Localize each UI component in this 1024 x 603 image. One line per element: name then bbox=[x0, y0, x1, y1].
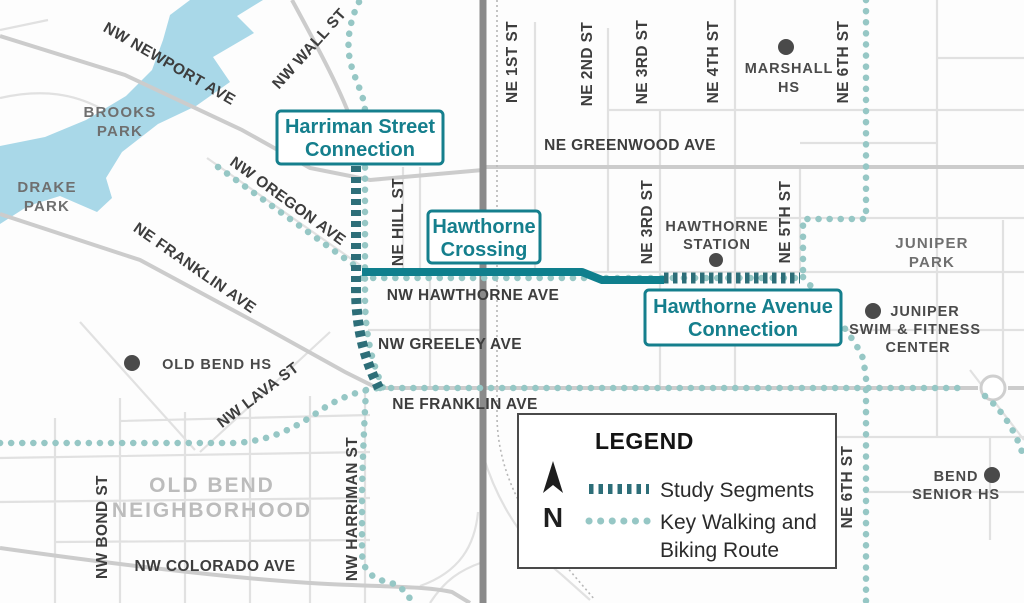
street-label-ne-1st-st: NE 1ST ST bbox=[504, 21, 521, 103]
bend-senior-hs-marker bbox=[984, 467, 1000, 483]
street-label-ne-2nd-st: NE 2ND ST bbox=[579, 22, 596, 107]
callout-hawthorne-ave-line1: Hawthorne Avenue bbox=[653, 296, 833, 318]
park-label-drake-1: DRAKE bbox=[17, 179, 76, 196]
street-label-nw-greeley-ave: NW GREELEY AVE bbox=[378, 336, 522, 353]
street-label-ne-hill-st: NE HILL ST bbox=[390, 178, 407, 266]
hawthorne-station-label-1: HAWTHORNE bbox=[665, 219, 768, 235]
neighborhood-label-1: OLD BEND bbox=[149, 474, 275, 497]
bend-senior-hs-label-2: SENIOR HS bbox=[912, 487, 1000, 503]
park-label-juniper-1: JUNIPER bbox=[895, 235, 968, 252]
street-label-nw-oregon-ave: NW OREGON AVE bbox=[227, 154, 349, 249]
juniper-swim-marker bbox=[865, 303, 881, 319]
old-bend-hs-label: OLD BEND HS bbox=[162, 357, 272, 373]
legend: LEGEND N Study Segments Key Walking and … bbox=[518, 414, 836, 568]
juniper-swim-label-2: SWIM & FITNESS bbox=[849, 322, 981, 338]
street-label-nw-bond-st: NW BOND ST bbox=[94, 475, 111, 579]
street-label-ne-3rd-st-mid: NE 3RD ST bbox=[639, 180, 656, 265]
callout-hawthorne-ave-line2: Connection bbox=[688, 319, 798, 341]
park-label-brooks-2: PARK bbox=[97, 123, 143, 140]
callout-crossing-line2: Crossing bbox=[441, 239, 528, 261]
street-label-nw-harriman-st: NW HARRIMAN ST bbox=[344, 437, 361, 581]
street-label-nw-hawthorne-ave: NW HAWTHORNE AVE bbox=[387, 287, 560, 304]
walking-route-harriman-south bbox=[362, 390, 412, 603]
street-label-ne-4th-st: NE 4TH ST bbox=[705, 20, 722, 103]
map-canvas: NW NEWPORT AVE NW WALL ST NW OREGON AVE … bbox=[0, 0, 1024, 603]
walking-route-oregon-ave bbox=[218, 167, 358, 268]
walking-route-wall-st bbox=[348, 2, 365, 110]
street-label-nw-colorado-ave: NW COLORADO AVE bbox=[135, 558, 296, 575]
juniper-swim-label-1: JUNIPER bbox=[890, 304, 959, 320]
legend-title: LEGEND bbox=[595, 428, 694, 454]
street-label-ne-franklin-ave-east: NE FRANKLIN AVE bbox=[392, 396, 538, 413]
street-label-nw-wall-st: NW WALL ST bbox=[269, 5, 350, 92]
bend-senior-hs-label-1: BEND bbox=[934, 469, 979, 485]
marshall-hs-label-1: MARSHALL bbox=[745, 61, 834, 77]
callout-harriman-street-connection: Harriman Street Connection bbox=[277, 111, 443, 164]
park-label-juniper-2: PARK bbox=[909, 254, 955, 271]
callout-hawthorne-avenue-connection: Hawthorne Avenue Connection bbox=[645, 290, 841, 345]
street-label-ne-6th-st-north: NE 6TH ST bbox=[835, 20, 852, 103]
neighborhood-label-2: NEIGHBORHOOD bbox=[112, 499, 312, 522]
street-label-ne-5th-st: NE 5TH ST bbox=[777, 180, 794, 263]
north-label: N bbox=[543, 502, 563, 533]
juniper-swim-label-3: CENTER bbox=[885, 340, 950, 356]
callout-hawthorne-crossing: Hawthorne Crossing bbox=[428, 211, 540, 263]
legend-item-walking-line2: Biking Route bbox=[660, 539, 779, 562]
callout-crossing-line1: Hawthorne bbox=[432, 216, 535, 238]
callout-harriman-line1: Harriman Street bbox=[285, 116, 435, 138]
callout-harriman-line2: Connection bbox=[305, 139, 415, 161]
hawthorne-station-marker bbox=[709, 253, 723, 267]
park-label-drake-2: PARK bbox=[24, 198, 70, 215]
park-label-brooks-1: BROOKS bbox=[83, 104, 156, 121]
street-label-ne-greenwood-ave: NE GREENWOOD AVE bbox=[544, 137, 716, 154]
marshall-hs-label-2: HS bbox=[778, 80, 800, 96]
hawthorne-station-label-2: STATION bbox=[683, 237, 751, 253]
street-label-ne-6th-st-south: NE 6TH ST bbox=[839, 445, 856, 528]
marshall-hs-marker bbox=[778, 39, 794, 55]
street-label-ne-franklin-ave-west: NE FRANKLIN AVE bbox=[130, 220, 259, 317]
street-label-ne-3rd-st-north: NE 3RD ST bbox=[634, 20, 651, 105]
old-bend-hs-marker bbox=[124, 355, 140, 371]
legend-item-walking-line1: Key Walking and bbox=[660, 511, 817, 534]
legend-item-study-segments: Study Segments bbox=[660, 479, 814, 502]
bend-study-map: NW NEWPORT AVE NW WALL ST NW OREGON AVE … bbox=[0, 0, 1024, 603]
